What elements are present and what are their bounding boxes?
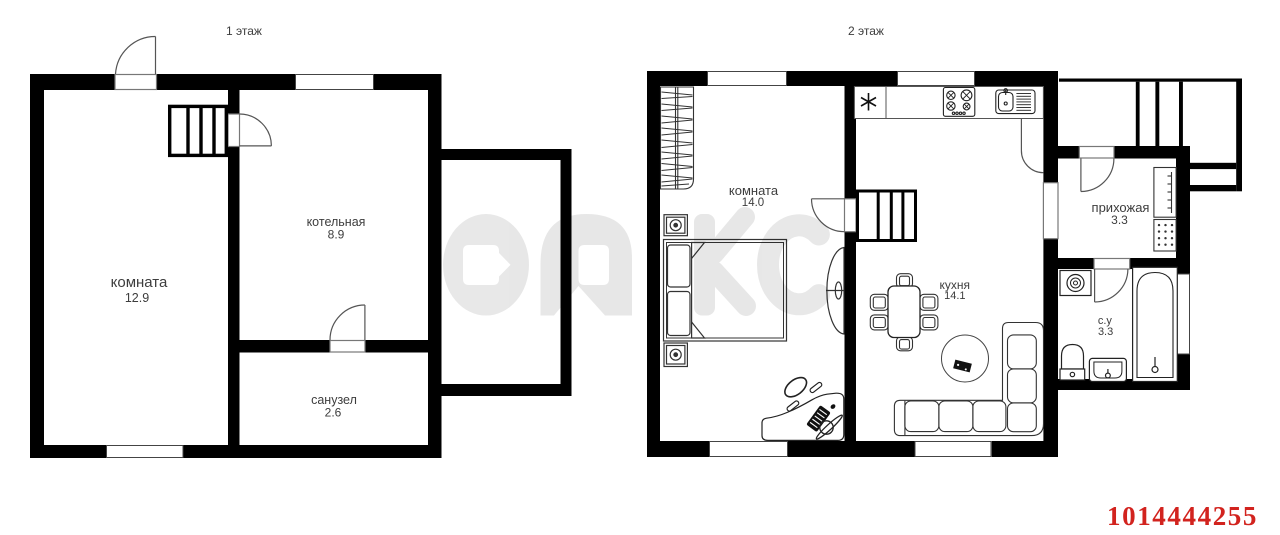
svg-text:2.6: 2.6 <box>325 406 342 420</box>
svg-text:3.3: 3.3 <box>1098 326 1113 338</box>
svg-text:12.9: 12.9 <box>125 291 149 305</box>
svg-text:1 этаж: 1 этаж <box>226 24 262 38</box>
svg-text:14.1: 14.1 <box>944 290 965 302</box>
svg-text:3.3: 3.3 <box>1111 213 1128 227</box>
svg-text:8.9: 8.9 <box>328 228 345 242</box>
svg-text:комната: комната <box>111 274 168 291</box>
svg-text:2 этаж: 2 этаж <box>848 24 884 38</box>
svg-text:1014444255: 1014444255 <box>1107 501 1258 531</box>
svg-text:комната: комната <box>729 183 779 198</box>
